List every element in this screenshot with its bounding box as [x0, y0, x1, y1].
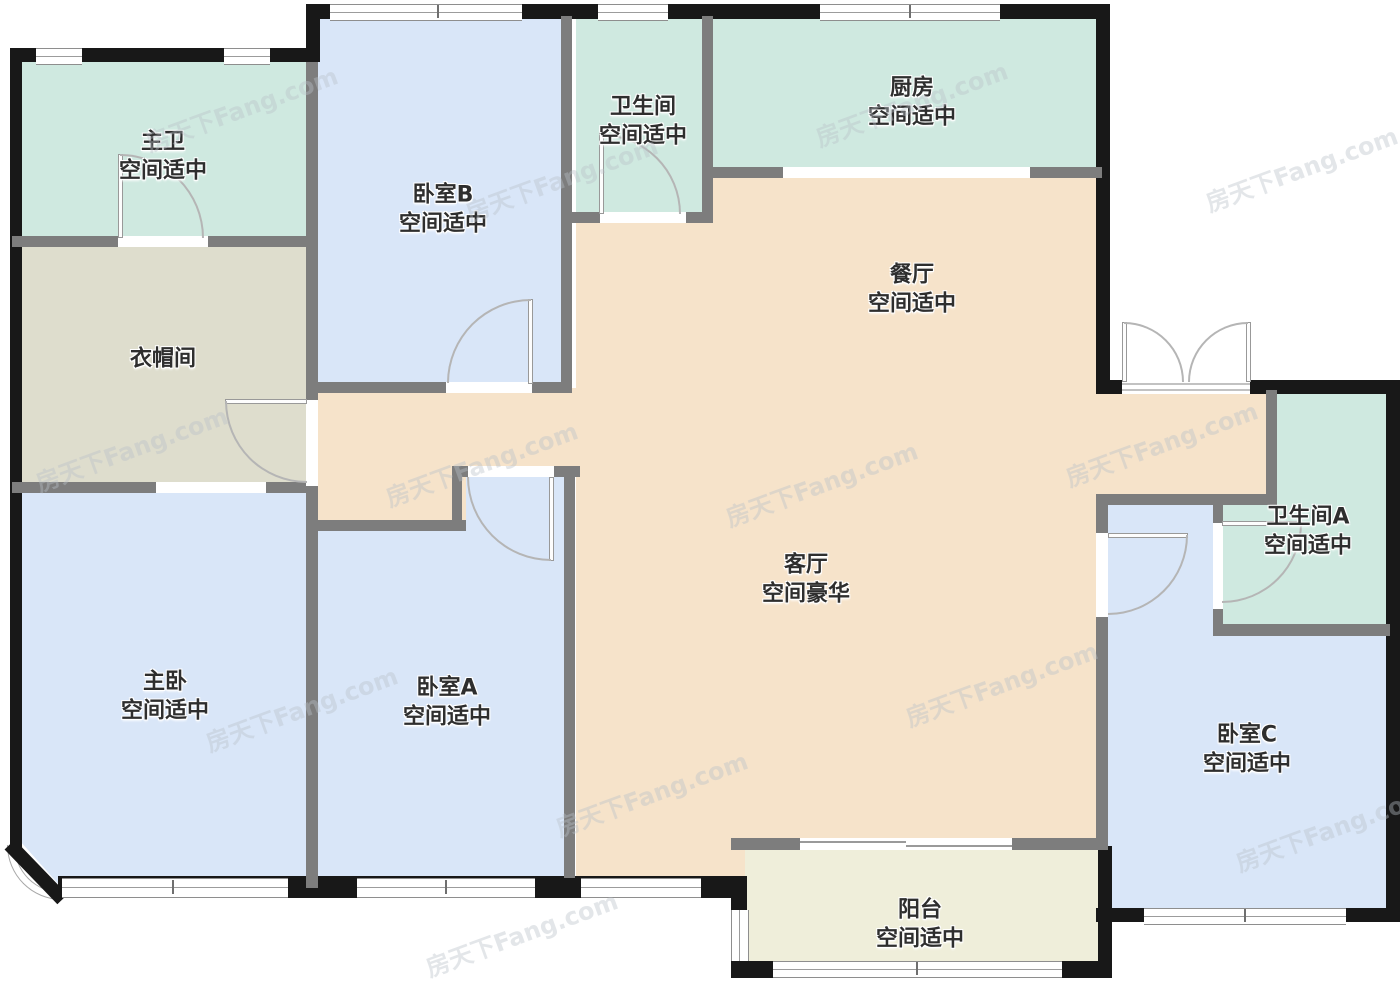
room-label-bedroom-a: 卧室A 空间适中	[403, 674, 491, 731]
room-name: 卫生间	[599, 93, 687, 122]
wall-exterior	[1098, 846, 1112, 978]
room-assessment: 空间适中	[876, 925, 964, 954]
room-name: 衣帽间	[130, 346, 196, 375]
watermark: 房天下Fang.com	[1200, 116, 1400, 218]
room-label-cloakroom: 衣帽间	[130, 346, 196, 375]
window	[224, 48, 270, 65]
room-label-master-bath: 主卫 空间适中	[119, 128, 207, 185]
room-name: 客厅	[762, 551, 850, 580]
room-name: 厨房	[868, 74, 956, 103]
room-name: 卧室B	[399, 181, 487, 210]
room-label-bedroom-b: 卧室B 空间适中	[399, 181, 487, 238]
room-assessment: 空间适中	[399, 210, 487, 239]
room-assessment: 空间适中	[121, 697, 209, 726]
window-tick	[437, 5, 439, 18]
wall-interior	[1266, 390, 1277, 500]
room-label-dining: 餐厅 空间适中	[868, 261, 956, 318]
room-label-master-bedroom: 主卧 空间适中	[121, 668, 209, 725]
window	[62, 878, 288, 898]
window-tick	[916, 962, 918, 975]
passage-cloakroom-master	[156, 482, 266, 493]
room-assessment: 空间适中	[119, 157, 207, 186]
door-opening-bedroom-a	[468, 466, 554, 477]
room-assessment: 空间适中	[1203, 750, 1291, 779]
sliding-door-balcony	[800, 838, 1012, 850]
room-assessment: 空间适中	[403, 703, 491, 732]
room-label-living: 客厅 空间豪华	[762, 551, 850, 608]
room-label-kitchen: 厨房 空间适中	[868, 74, 956, 131]
window	[581, 878, 701, 898]
entry-door-arc	[1188, 322, 1248, 382]
entry-threshold	[1122, 389, 1250, 391]
sliding-door-panel	[800, 841, 906, 843]
window-tick	[1244, 909, 1246, 922]
wall-interior	[702, 16, 713, 223]
wall-exterior	[1096, 4, 1110, 394]
floor-entry-hall	[1102, 390, 1272, 500]
room-label-bathroom-a: 卫生间A 空间适中	[1264, 503, 1352, 560]
room-assessment: 空间适中	[1264, 532, 1352, 561]
wall-interior	[561, 16, 572, 393]
room-label-balcony: 阳台 空间适中	[876, 896, 964, 953]
room-assessment: 空间豪华	[762, 580, 850, 609]
door-opening-bedroom-b	[446, 382, 532, 393]
room-label-bedroom-c: 卧室C 空间适中	[1203, 721, 1291, 778]
wall-exterior	[10, 48, 22, 848]
wall-exterior	[731, 961, 773, 978]
wall-interior	[306, 520, 466, 531]
room-name: 主卧	[121, 668, 209, 697]
passage-kitchen-dining	[783, 167, 1030, 178]
room-name: 卧室C	[1203, 721, 1291, 750]
floor-hallway	[306, 388, 466, 531]
window-tick	[172, 880, 174, 894]
entry-threshold	[1122, 383, 1250, 385]
window	[330, 4, 522, 21]
room-name: 主卫	[119, 128, 207, 157]
door-opening-bedroom-c	[1096, 533, 1108, 617]
room-name: 阳台	[876, 896, 964, 925]
window	[36, 48, 82, 65]
room-label-bathroom: 卫生间 空间适中	[599, 93, 687, 150]
room-assessment: 空间适中	[599, 122, 687, 151]
entry-door-arc	[1124, 322, 1184, 382]
wall-interior	[1213, 624, 1390, 636]
wall-exterior	[731, 876, 747, 910]
room-assessment: 空间适中	[868, 290, 956, 319]
room-name: 卧室A	[403, 674, 491, 703]
window	[731, 910, 749, 961]
room-name: 餐厅	[868, 261, 956, 290]
window-tick	[909, 5, 911, 18]
window	[598, 4, 668, 21]
wall-interior	[452, 477, 462, 531]
wall-exterior	[1386, 380, 1400, 922]
floor-plan: 主卫 空间适中 衣帽间 主卧 空间适中 卧室B 空间适中 卧室A 空间适中 卫生…	[0, 0, 1400, 990]
window-tick	[445, 880, 447, 894]
wall-interior	[564, 466, 575, 878]
floor-bathroom-a	[1272, 390, 1390, 500]
door-opening-cloakroom	[306, 400, 318, 486]
sliding-door-panel	[906, 845, 1012, 847]
wall-exterior	[1062, 961, 1112, 978]
room-assessment: 空间适中	[868, 103, 956, 132]
room-name: 卫生间A	[1264, 503, 1352, 532]
wall-interior	[1096, 494, 1277, 505]
